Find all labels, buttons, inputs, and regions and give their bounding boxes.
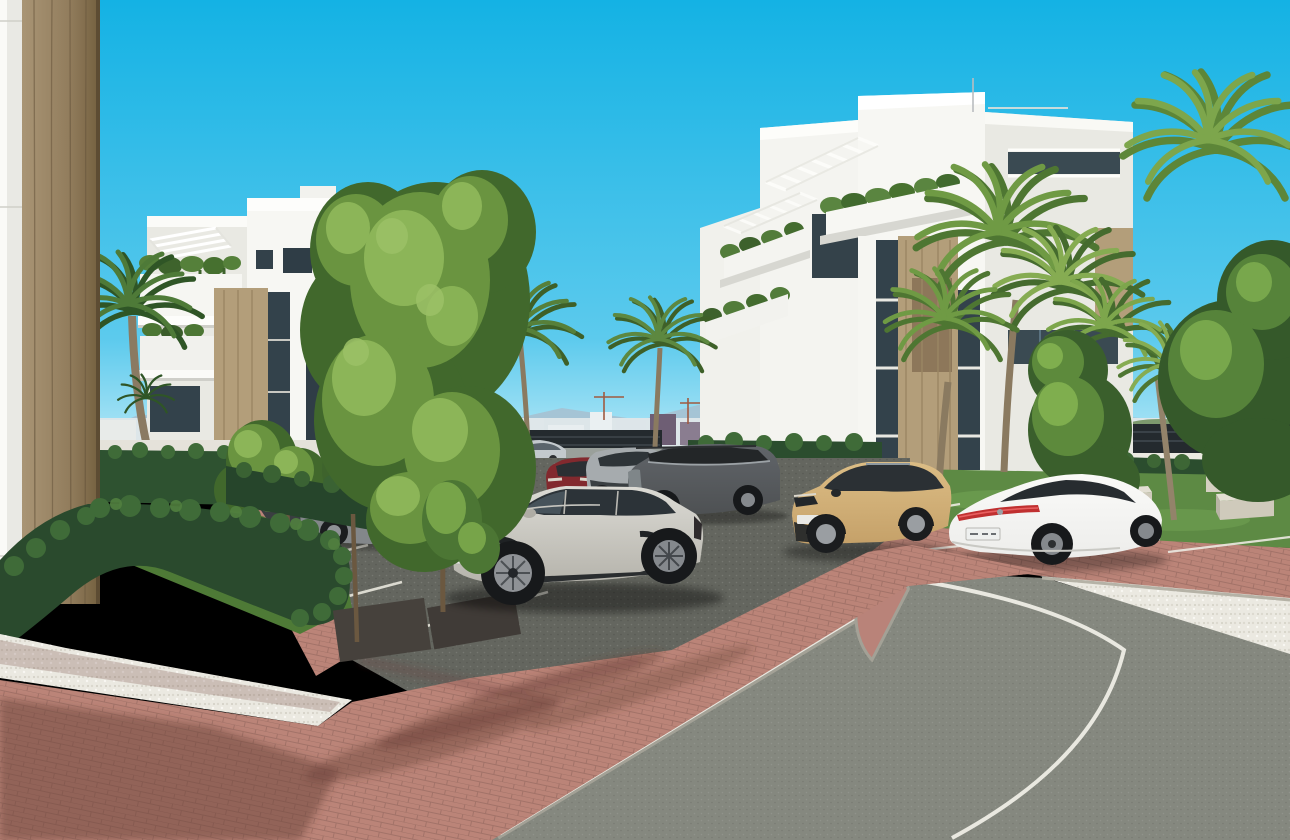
render-viewport <box>0 0 1290 840</box>
architectural-render <box>0 0 1290 840</box>
